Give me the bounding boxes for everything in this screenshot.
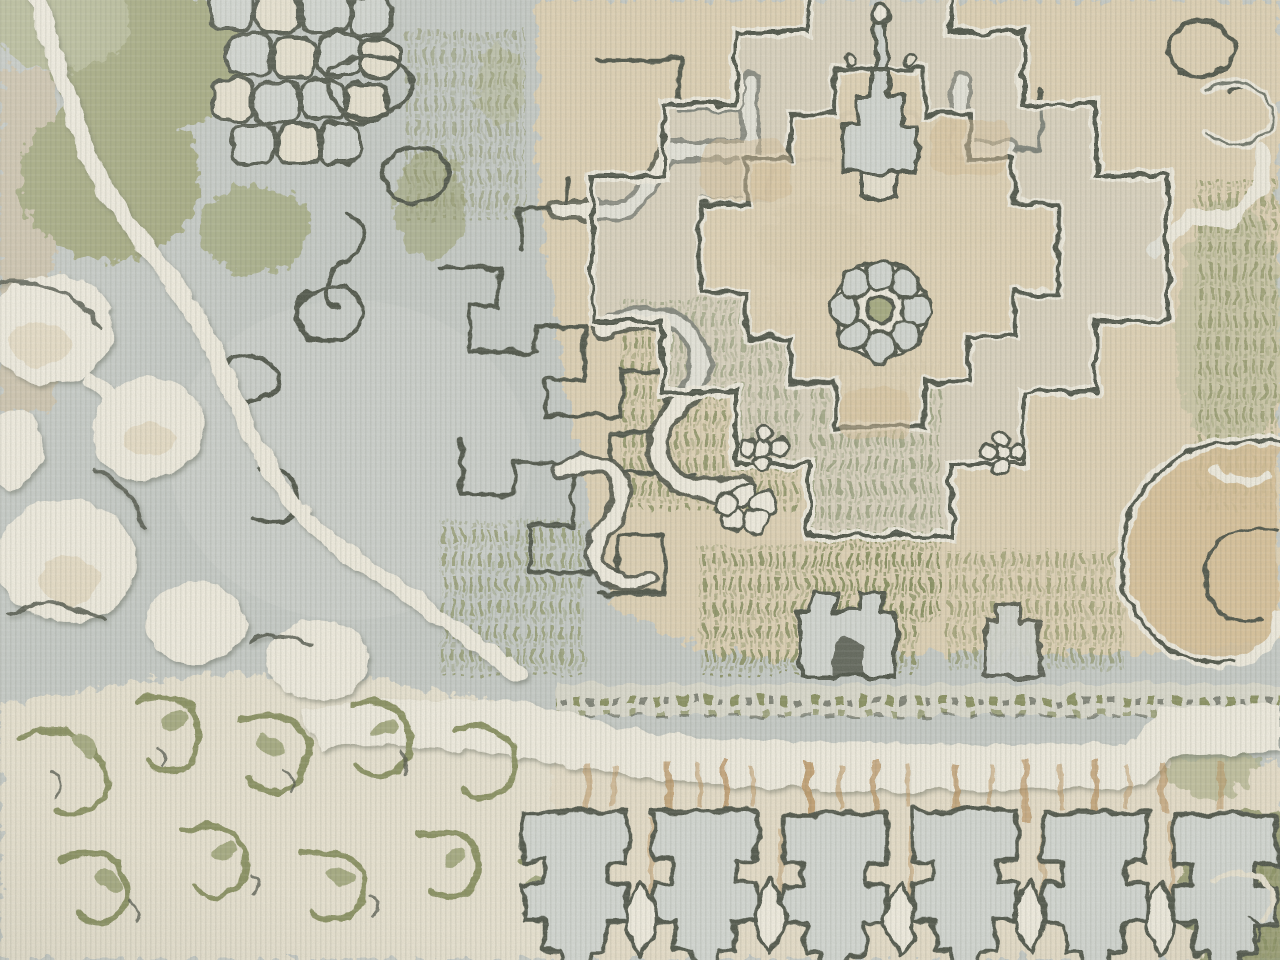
rug-pattern-canvas <box>0 0 1280 960</box>
rug-photo <box>0 0 1280 960</box>
fiber-grain-texture <box>0 0 1280 960</box>
